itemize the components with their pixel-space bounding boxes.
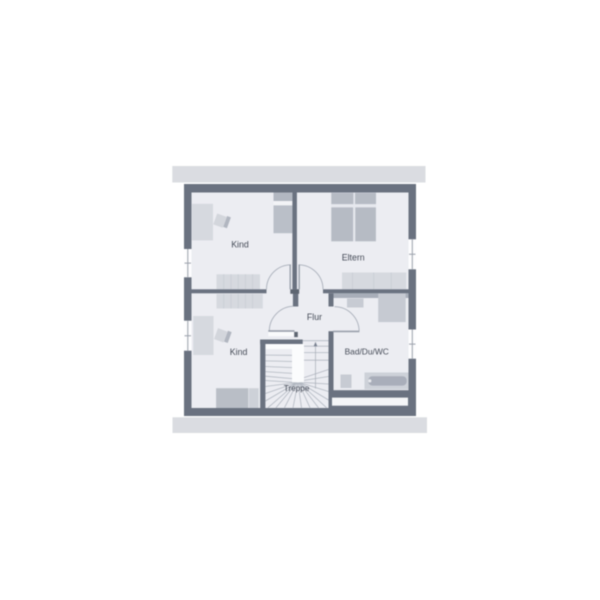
svg-text:Kind: Kind <box>230 347 248 357</box>
svg-text:Bad/Du/WC: Bad/Du/WC <box>345 347 389 357</box>
svg-text:Eltern: Eltern <box>342 252 365 262</box>
svg-text:Treppe: Treppe <box>284 384 310 393</box>
svg-text:Flur: Flur <box>307 312 322 322</box>
svg-text:Kind: Kind <box>231 240 249 250</box>
